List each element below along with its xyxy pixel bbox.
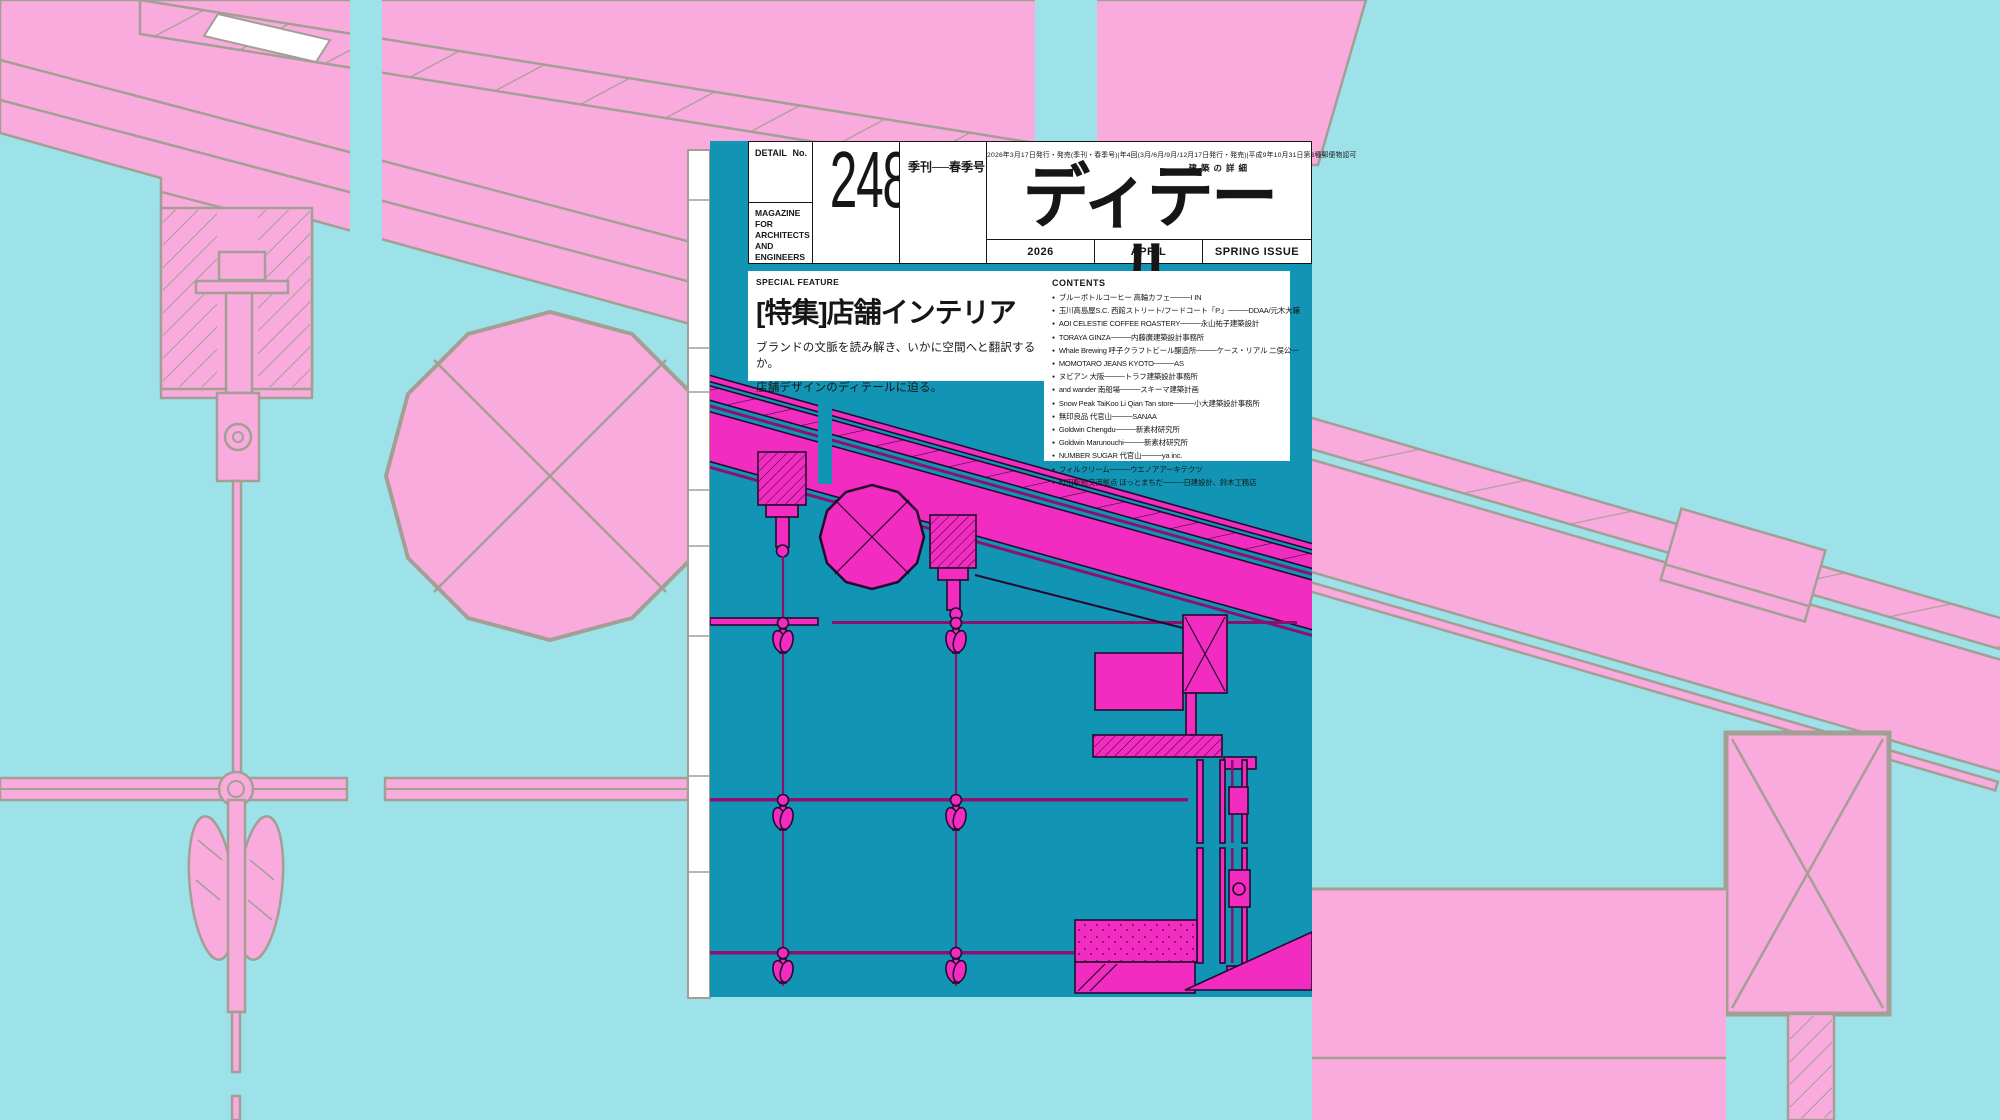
cover-mullion: [1197, 760, 1250, 963]
contents-item: ●ブルーボトルコーヒー 高輪カフェ────I IN: [1052, 292, 1284, 305]
contents-item: ●Goldwin Chengdu────新素材研究所: [1052, 424, 1284, 437]
contents-box: CONTENTS ●ブルーボトルコーヒー 高輪カフェ────I IN●玉川高島屋…: [1044, 271, 1290, 461]
contents-item: ●AOI CELESTIE COFFEE ROASTERY────永山祐子建築設…: [1052, 318, 1284, 331]
contents-item-label: ブルーボトルコーヒー 高輪カフェ────I IN: [1059, 292, 1202, 303]
contents-item: ●町田駅前交流拠点 ほっとまちだ────日建設計、鈴木工務店: [1052, 477, 1284, 490]
contents-item: ●Whale Brewing 呼子クラフトビール醸造所────ケース・リアル 二…: [1052, 345, 1284, 358]
detail-label: DETAIL: [755, 148, 787, 202]
bullet-icon: ●: [1052, 333, 1055, 344]
publication-fine-print: 2026年3月17日発行・発売(季刊・春季号)|年4回(3月/6月/9月/12月…: [987, 142, 1311, 159]
contents-item-label: 玉川高島屋S.C. 西館ストリート/フードコート「P.」────DDAA/元木大…: [1059, 305, 1300, 316]
magazine-cover: DETAIL No. MAGAZINE FOR ARCHITECTS AND E…: [710, 141, 1312, 997]
page: DETAIL No. MAGAZINE FOR ARCHITECTS AND E…: [0, 0, 2000, 1120]
bullet-icon: ●: [1052, 319, 1055, 330]
cover-wall-section: [975, 575, 1312, 993]
bg-glass-joint-row: [0, 772, 688, 806]
contents-item: ●玉川高島屋S.C. 西館ストリート/フードコート「P.」────DDAA/元木…: [1052, 305, 1284, 318]
bullet-icon: ●: [1052, 438, 1055, 449]
contents-item-label: フィルクリーム────ウエノアアーキテクツ: [1059, 464, 1203, 475]
contents-item: ●無印良品 代官山────SANAA: [1052, 411, 1284, 424]
bullet-icon: ●: [1052, 425, 1055, 436]
bullet-icon: ●: [1052, 478, 1055, 489]
contents-item-label: Goldwin Chengdu────新素材研究所: [1059, 424, 1180, 435]
bullet-icon: ●: [1052, 399, 1055, 410]
contents-item-label: AOI CELESTIE COFFEE ROASTERY────永山祐子建築設計: [1059, 318, 1259, 329]
magazine-for-label: MAGAZINE FOR ARCHITECTS AND ENGINEERS: [749, 203, 812, 263]
bg-white-mullion-strip: [688, 150, 710, 998]
contents-item: ●フィルクリーム────ウエノアアーキテクツ: [1052, 464, 1284, 477]
bullet-icon: ●: [1052, 346, 1055, 357]
contents-item-label: NUMBER SUGAR 代官山────ya inc.: [1059, 450, 1182, 461]
bullet-icon: ●: [1052, 385, 1055, 396]
contents-item-label: and wander 南船場────スキーマ建築計画: [1059, 384, 1199, 395]
contents-item-label: Goldwin Marunouchi────新素材研究所: [1059, 437, 1188, 448]
contents-heading: CONTENTS: [1052, 278, 1284, 288]
contents-item: ●TORAYA GINZA────内藤廣建築設計事務所: [1052, 332, 1284, 345]
bullet-icon: ●: [1052, 451, 1055, 462]
contents-item-label: MOMOTARO JEANS KYOTO────AS: [1059, 358, 1184, 369]
issue-number: 248: [830, 142, 883, 217]
no-label: No.: [793, 148, 808, 202]
bg-bottom-band: [1312, 888, 1726, 1120]
bullet-icon: ●: [1052, 293, 1055, 304]
contents-item-label: TORAYA GINZA────内藤廣建築設計事務所: [1059, 332, 1204, 343]
contents-item: ●Goldwin Marunouchi────新素材研究所: [1052, 437, 1284, 450]
feature-title: [特集]店舗インテリア: [756, 291, 1036, 331]
header-logo-cell: 2026年3月17日発行・発売(季刊・春季号)|年4回(3月/6月/9月/12月…: [987, 142, 1311, 263]
cover-column-section: [820, 485, 924, 589]
bullet-icon: ●: [1052, 359, 1055, 370]
contents-item: ●and wander 南船場────スキーマ建築計画: [1052, 384, 1284, 397]
season-label: 季刊──春季号: [908, 160, 985, 174]
contents-item-label: Snow Peak TaiKoo Li Qian Tan store────小大…: [1059, 398, 1260, 409]
cover-hanger-1: [758, 452, 806, 557]
header-issue-number-cell: 248: [813, 142, 900, 263]
header-season-cell: 季刊──春季号: [900, 142, 987, 263]
bg-cable: [233, 481, 241, 781]
cover-header: DETAIL No. MAGAZINE FOR ARCHITECTS AND E…: [748, 141, 1312, 264]
cover-beam-joint-slot: [818, 380, 832, 484]
contents-list: ●ブルーボトルコーヒー 高輪カフェ────I IN●玉川高島屋S.C. 西館スト…: [1052, 292, 1284, 490]
bullet-icon: ●: [1052, 306, 1055, 317]
contents-item-label: Whale Brewing 呼子クラフトビール醸造所────ケース・リアル 二俣…: [1059, 345, 1299, 356]
feature-desc-line-2: 店舗デザインのディテールに迫る。: [756, 379, 1036, 395]
bullet-icon: ●: [1052, 465, 1055, 476]
bg-column-section: [386, 312, 714, 640]
logo-subtitle: 建築の詳細: [1188, 162, 1251, 174]
contents-item: ●NUMBER SUGAR 代官山────ya inc.: [1052, 450, 1284, 463]
bullet-icon: ●: [1052, 412, 1055, 423]
feature-desc-line-1: ブランドの文脈を読み解き、いかに空間へと翻訳するか。: [756, 339, 1036, 371]
contents-item: ●Snow Peak TaiKoo Li Qian Tan store────小…: [1052, 398, 1284, 411]
contents-item-label: 町田駅前交流拠点 ほっとまちだ────日建設計、鈴木工務店: [1059, 477, 1257, 488]
cover-hanger-2: [930, 515, 976, 620]
contents-item: ●MOMOTARO JEANS KYOTO────AS: [1052, 358, 1284, 371]
contents-item: ●ヌビアン 大阪────トラフ建築設計事務所: [1052, 371, 1284, 384]
contents-item-label: 無印良品 代官山────SANAA: [1059, 411, 1157, 422]
contents-item-label: ヌビアン 大阪────トラフ建築設計事務所: [1059, 371, 1198, 382]
special-feature-label: SPECIAL FEATURE: [756, 277, 1036, 287]
special-feature-box: SPECIAL FEATURE [特集]店舗インテリア ブランドの文脈を読み解き…: [748, 271, 1044, 381]
header-detail-cell: DETAIL No. MAGAZINE FOR ARCHITECTS AND E…: [749, 142, 813, 263]
bg-panel-joint-slot-1: [350, 0, 382, 242]
bullet-icon: ●: [1052, 372, 1055, 383]
